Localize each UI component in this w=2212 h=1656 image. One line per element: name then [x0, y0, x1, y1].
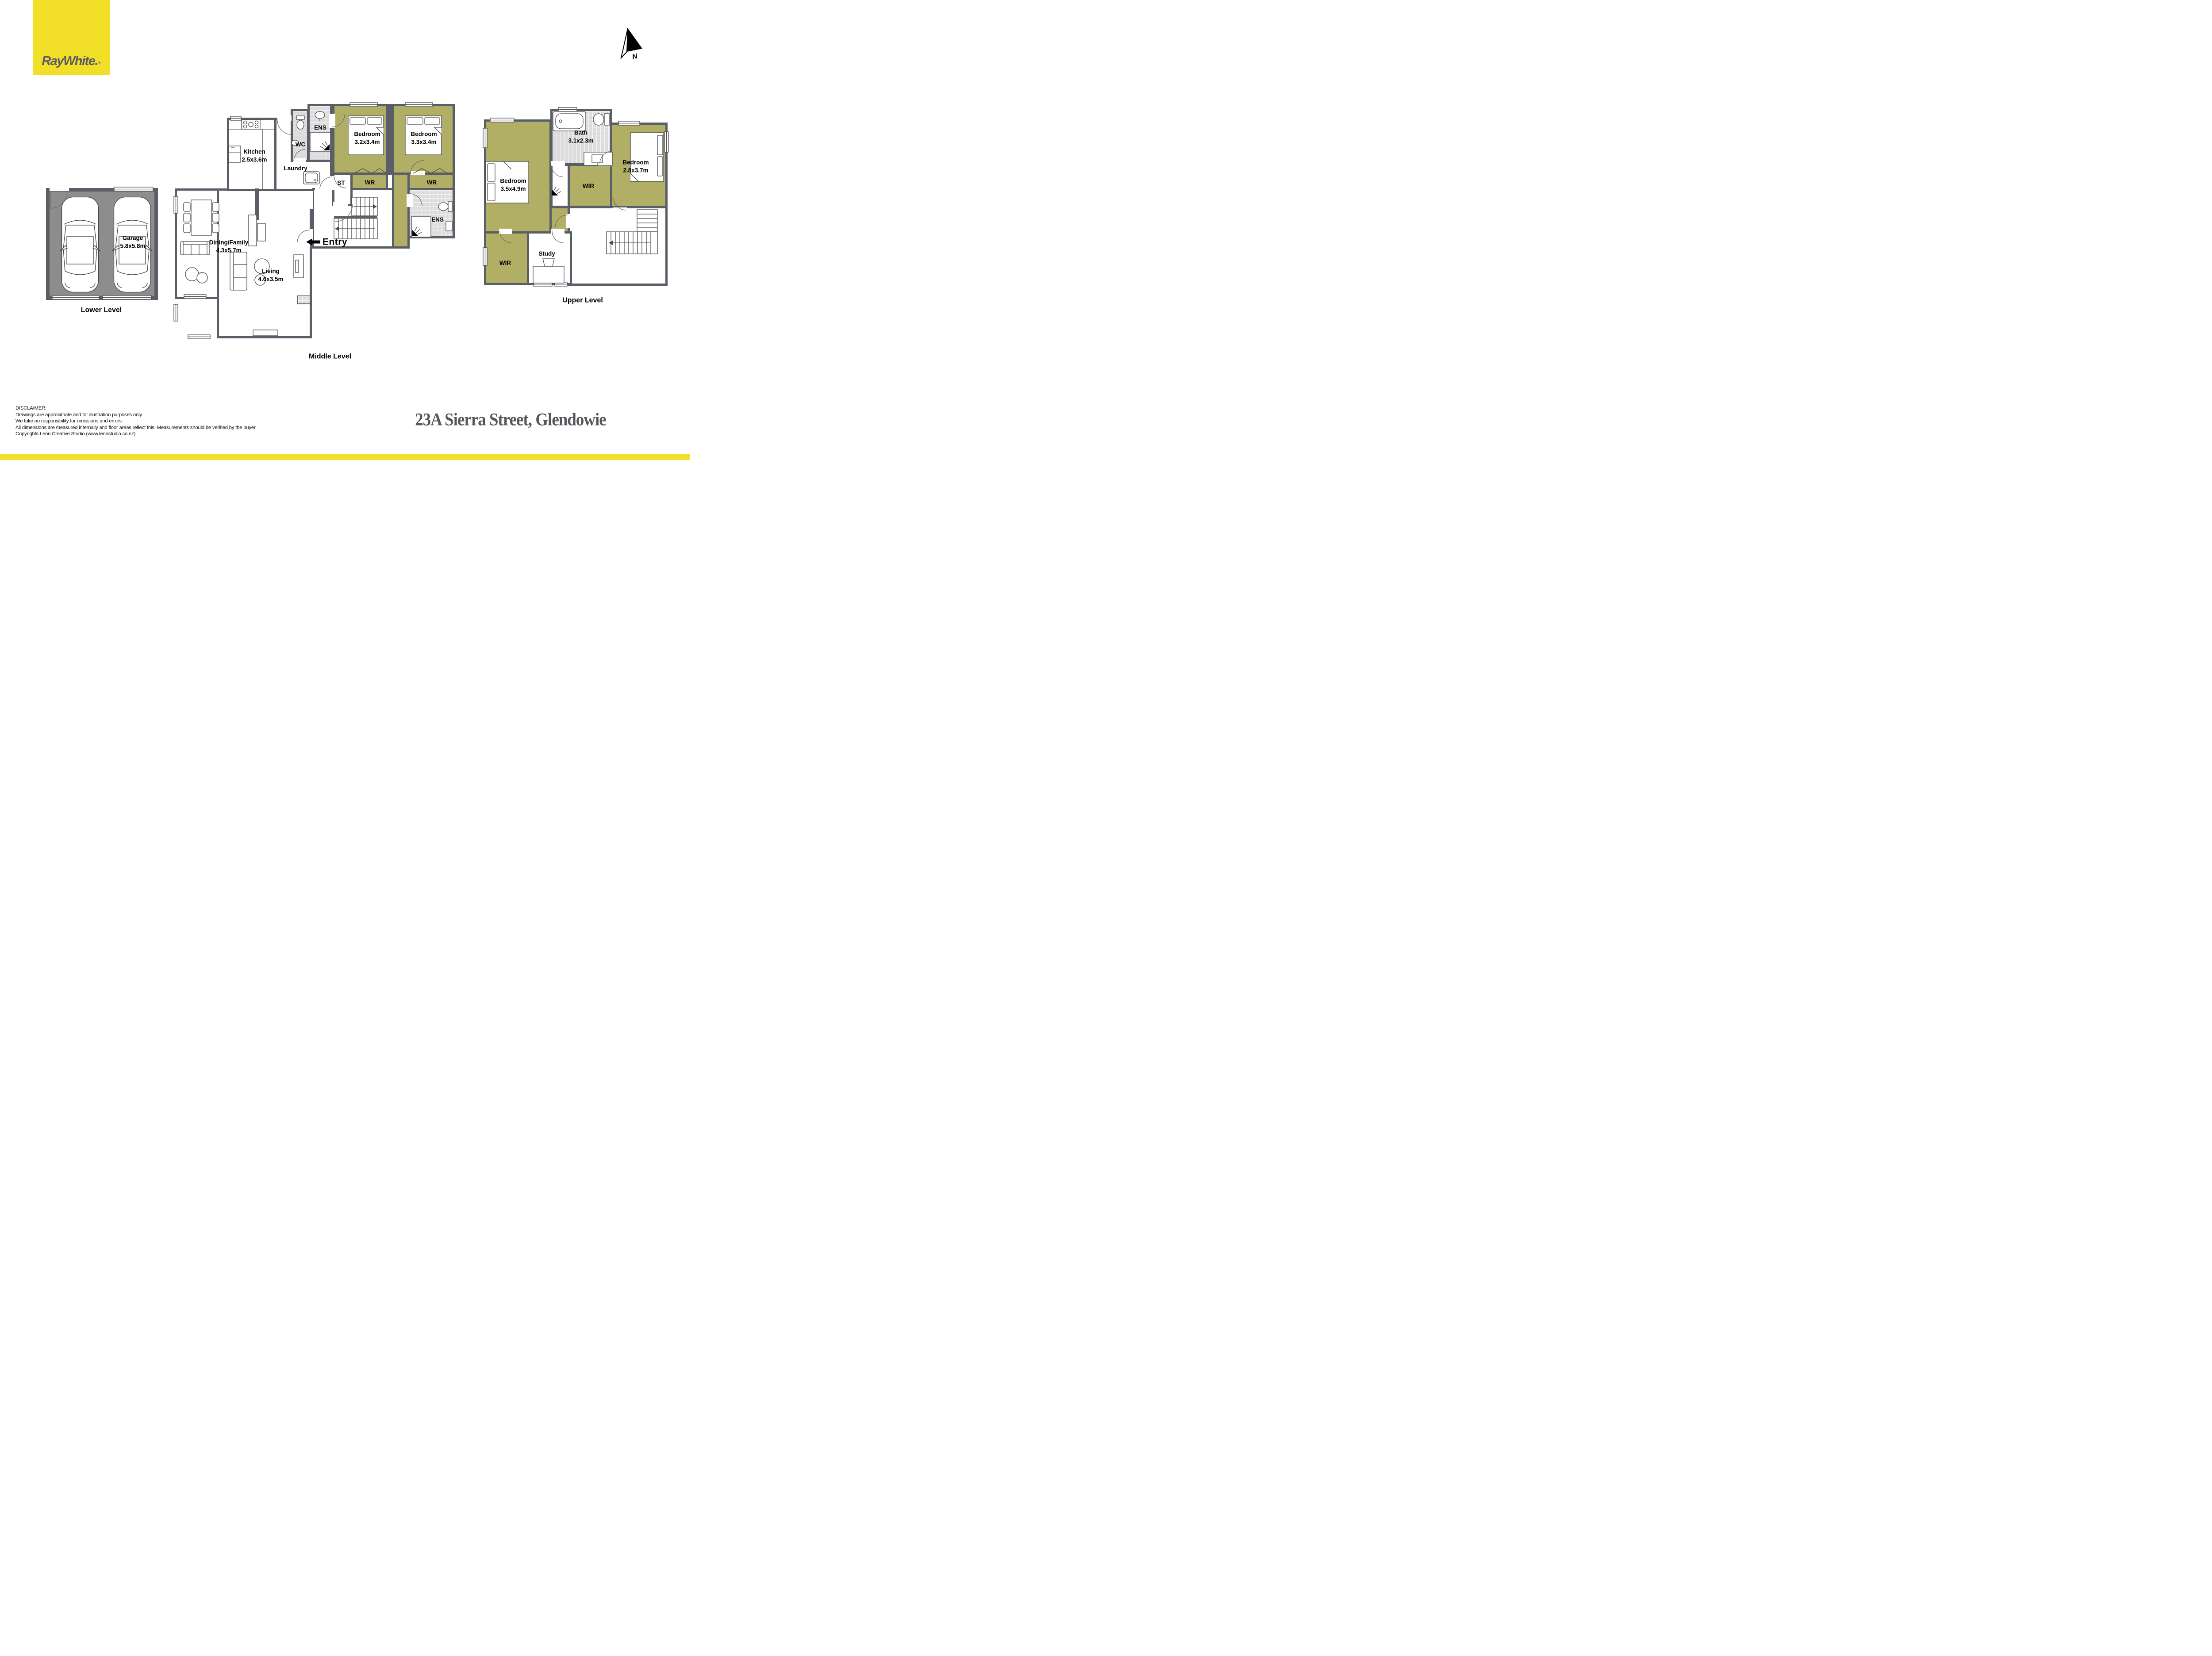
- room-ens-middle: [307, 104, 332, 162]
- label-study: Study: [538, 250, 555, 258]
- label-bedroom-33: Bedroom3.3x3.4m: [411, 130, 437, 146]
- room-ens2-middle: [407, 188, 455, 238]
- room-upper-corridor: [549, 206, 570, 234]
- disclaimer: DISCLAIMER: Drawings are approximate and…: [15, 405, 257, 437]
- label-wr-a: WR: [365, 179, 375, 187]
- disclaimer-line: All dimensions are measured internally a…: [15, 425, 257, 431]
- north-label: N: [631, 53, 638, 61]
- north-arrow-icon: N: [617, 25, 649, 65]
- label-garage: Garage5.8x5.8m: [120, 234, 145, 249]
- room-hallway-middle: [392, 172, 410, 249]
- label-bedroom-28: Bedroom2.8x3.7m: [622, 158, 649, 174]
- room-wc: [291, 109, 309, 162]
- porch-pad: [297, 295, 311, 304]
- room-storage-st: [332, 172, 353, 206]
- label-bedroom-35: Bedroom3.5x4.9m: [500, 177, 526, 192]
- bottom-yellow-strip: [0, 454, 690, 460]
- label-bedroom-32: Bedroom3.2x3.4m: [354, 130, 380, 146]
- label-bath: Bath3.1x2.3m: [568, 129, 593, 144]
- label-middle-level: Middle Level: [309, 353, 351, 362]
- label-st: ST: [337, 179, 345, 187]
- disclaimer-line: Copyrights Leon Creative Studio (www.leo…: [15, 431, 257, 437]
- label-ens-middle: ENS: [314, 124, 326, 132]
- disclaimer-line: Drawings are approximate and for illustr…: [15, 412, 257, 418]
- label-upper-level: Upper Level: [562, 296, 603, 306]
- disclaimer-title: DISCLAIMER:: [15, 405, 257, 412]
- room-stair-void: [550, 164, 570, 208]
- label-laundry: Laundry: [284, 165, 307, 172]
- property-address: 23A Sierra Street, Glendowie: [415, 409, 606, 430]
- room-upper-landing: [568, 206, 668, 286]
- label-wc: WC: [296, 141, 306, 149]
- label-wir-middle: WIR: [583, 182, 594, 190]
- label-lower-level: Lower Level: [81, 306, 122, 315]
- room-wir-lower: [484, 231, 529, 285]
- label-living: Living4.6x3.5m: [258, 267, 283, 283]
- room-bedroom-35: [484, 119, 552, 234]
- label-wr-b: WR: [427, 179, 437, 187]
- label-entry: Entry: [323, 236, 347, 248]
- room-living: [217, 188, 312, 338]
- floorplan-page: RayWhite.® N: [0, 0, 690, 460]
- registered-mark: ®: [98, 61, 101, 65]
- label-wir-lower: WIR: [499, 259, 511, 267]
- raywhite-logo: RayWhite.®: [33, 0, 110, 75]
- label-ens2-middle: ENS: [431, 216, 444, 224]
- room-study: [527, 231, 572, 285]
- raywhite-logo-text: RayWhite.®: [42, 54, 100, 69]
- disclaimer-line: We take no responsibility for omissions …: [15, 418, 257, 425]
- label-kitchen: Kitchen2.5x3.6m: [242, 148, 267, 163]
- label-dining: Dining/Family4.3x5.7m: [209, 238, 249, 254]
